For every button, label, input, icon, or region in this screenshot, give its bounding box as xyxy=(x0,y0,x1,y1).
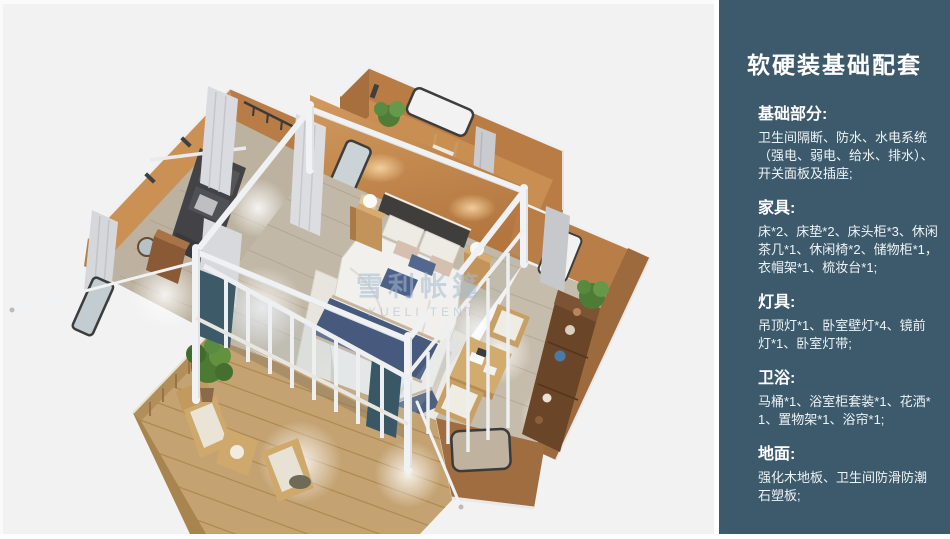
section-furniture-body: 床*2、床垫*2、床头柜*3、休闲茶几*1、休闲椅*2、储物柜*1，衣帽架*1、… xyxy=(758,223,938,277)
section-furniture: 家具: 床*2、床垫*2、床头柜*3、休闲茶几*1、休闲椅*2、储物柜*1，衣帽… xyxy=(758,198,938,277)
section-flooring: 地面: 强化木地板、卫生间防滑防潮石塑板; xyxy=(758,444,938,505)
section-lighting-heading: 灯具: xyxy=(758,292,938,313)
watermark-cn: 雪利帐篷 xyxy=(356,271,484,302)
slide: 雪利帐篷 XUELI TENT 软硬装基础配套 基础部分: 卫生间隔断、防水、水… xyxy=(0,0,950,534)
floorplan-render: 雪利帐篷 XUELI TENT xyxy=(0,0,714,534)
section-basics-body: 卫生间隔断、防水、水电系统（强电、弱电、给水、排水）、开关面板及插座; xyxy=(758,129,938,183)
section-lighting: 灯具: 吊顶灯*1、卧室壁灯*4、镜前灯*1、卧室灯带; xyxy=(758,292,938,353)
section-bathroom-body: 马桶*1、浴室柜套装*1、花洒*1、置物架*1、浴帘*1; xyxy=(758,393,938,429)
floorplan-photo-area: 雪利帐篷 XUELI TENT xyxy=(0,0,714,534)
spec-sections: 基础部分: 卫生间隔断、防水、水电系统（强电、弱电、给水、排水）、开关面板及插座… xyxy=(719,104,950,505)
section-bathroom: 卫浴: 马桶*1、浴室柜套装*1、花洒*1、置物架*1、浴帘*1; xyxy=(758,368,938,429)
spec-sidebar: 软硬装基础配套 基础部分: 卫生间隔断、防水、水电系统（强电、弱电、给水、排水）… xyxy=(719,0,950,534)
section-lighting-body: 吊顶灯*1、卧室壁灯*4、镜前灯*1、卧室灯带; xyxy=(758,317,938,353)
section-furniture-heading: 家具: xyxy=(758,198,938,219)
section-flooring-heading: 地面: xyxy=(758,444,938,465)
section-bathroom-heading: 卫浴: xyxy=(758,368,938,389)
section-basics-heading: 基础部分: xyxy=(758,104,938,125)
photo-top-edge xyxy=(0,0,714,4)
section-basics: 基础部分: 卫生间隔断、防水、水电系统（强电、弱电、给水、排水）、开关面板及插座… xyxy=(758,104,938,183)
sidebar-title: 软硬装基础配套 xyxy=(723,46,946,80)
watermark-en: XUELI TENT xyxy=(368,305,477,319)
watermark: 雪利帐篷 XUELI TENT xyxy=(356,271,484,319)
photo-left-edge xyxy=(0,0,3,534)
section-flooring-body: 强化木地板、卫生间防滑防潮石塑板; xyxy=(758,469,938,505)
